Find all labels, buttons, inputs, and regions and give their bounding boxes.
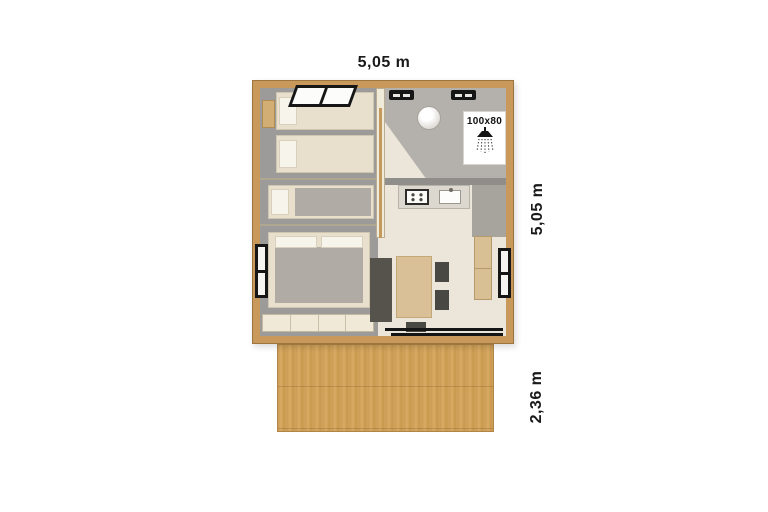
double-bed [268, 232, 370, 308]
kitchen-counter [398, 185, 470, 209]
washbasin-sink [417, 106, 441, 130]
shower-head-icon [473, 127, 497, 153]
bedside-shelf [262, 100, 275, 128]
bathroom-side-floor [472, 185, 506, 237]
terrace-dimension-label: 2,36 m [528, 365, 546, 429]
sliding-door-leaf [391, 333, 503, 336]
width-dimension-label: 5,05 m [352, 54, 416, 72]
floor-plan-canvas: 5,05 m 5,05 m 2,36 m [0, 0, 768, 512]
louvre-window-1 [389, 90, 414, 100]
bedroom-master [260, 226, 378, 336]
sliding-door-track [385, 328, 503, 331]
bench-seat [370, 258, 392, 322]
chair [435, 290, 449, 310]
blanket [295, 188, 371, 216]
shower-cubicle: 100x80 [463, 111, 506, 165]
chair [435, 262, 449, 282]
shower-size-label: 100x80 [464, 116, 505, 127]
left-wall-window [255, 244, 268, 298]
pillow [275, 236, 317, 248]
dining-table [396, 256, 432, 318]
pillow [321, 236, 363, 248]
pillow [271, 189, 289, 215]
cabin-interior: 100x80 [260, 88, 506, 336]
terrace-deck [277, 344, 494, 432]
bathroom: 100x80 [385, 88, 506, 180]
wood-post [379, 108, 382, 238]
louvre-window-2 [451, 90, 476, 100]
cooktop [405, 189, 429, 205]
right-wall-window [498, 248, 511, 298]
hallway-wedge [385, 122, 427, 180]
skylight-window [288, 85, 358, 107]
faucet [449, 188, 453, 192]
wardrobe [262, 314, 374, 332]
depth-dimension-label: 5,05 m [529, 177, 547, 241]
cabin-outline: 100x80 [252, 80, 514, 344]
single-bed-3 [268, 185, 374, 219]
kitchen-sink [439, 190, 461, 204]
kitchen-back-wall [385, 178, 506, 185]
storage-cabinet [474, 236, 492, 300]
duvet [275, 247, 363, 303]
bedroom-mid-left [260, 180, 378, 224]
single-bed-2 [276, 135, 374, 173]
pillow [279, 140, 297, 168]
